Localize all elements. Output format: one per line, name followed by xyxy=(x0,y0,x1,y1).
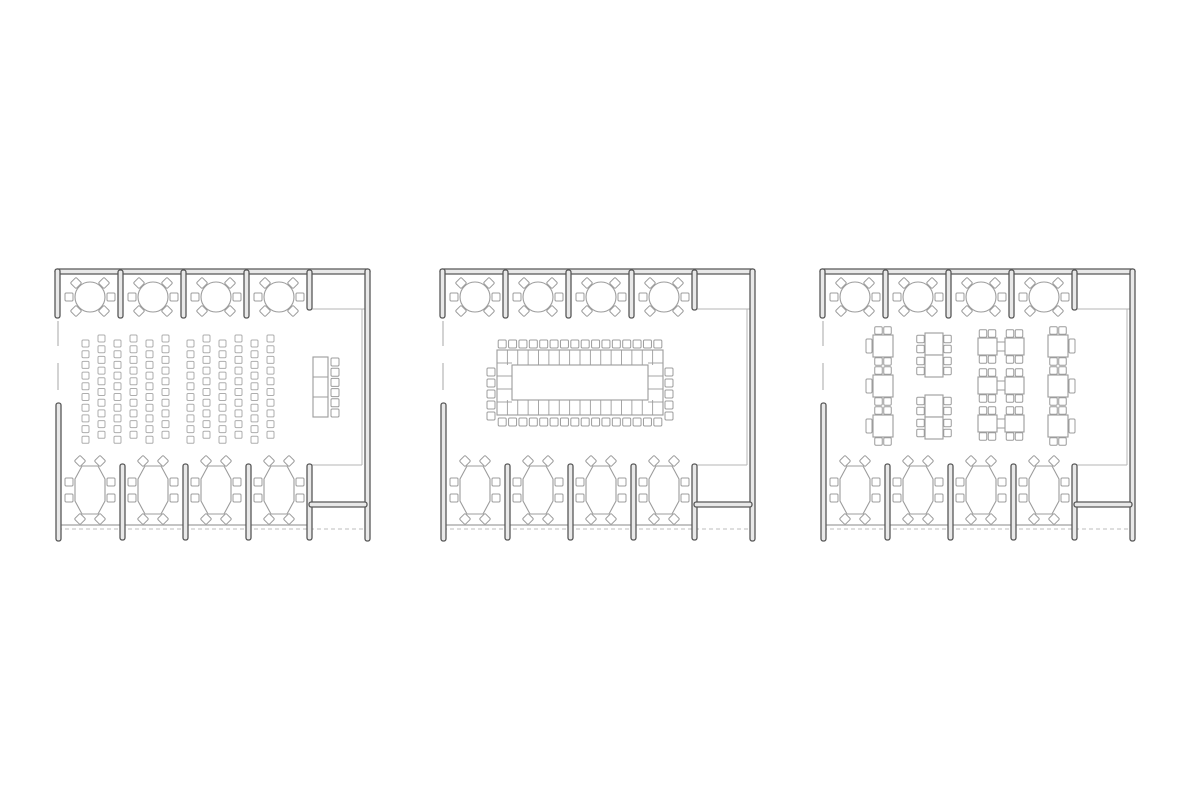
chair xyxy=(956,293,964,301)
chair xyxy=(585,455,596,466)
chair xyxy=(872,478,880,486)
oval-table-8-seats xyxy=(450,455,500,524)
chair xyxy=(203,346,210,353)
chair xyxy=(839,455,850,466)
chair xyxy=(200,513,211,524)
chair xyxy=(283,455,294,466)
chair xyxy=(522,455,533,466)
left-bottom-stub xyxy=(56,403,61,541)
chair xyxy=(529,418,537,426)
chair xyxy=(519,340,527,348)
chair xyxy=(875,367,883,375)
chair xyxy=(203,421,210,428)
chair xyxy=(235,356,242,363)
chair xyxy=(82,383,89,390)
chair xyxy=(979,407,987,415)
chair xyxy=(254,293,262,301)
chair xyxy=(875,438,883,446)
chair xyxy=(1050,407,1058,415)
chair xyxy=(665,412,673,420)
chair xyxy=(979,395,987,403)
chair xyxy=(157,513,168,524)
chair xyxy=(98,346,105,353)
right-wall xyxy=(1130,269,1135,541)
chair xyxy=(162,356,169,363)
chair xyxy=(944,335,952,343)
chair xyxy=(479,513,490,524)
chair xyxy=(618,478,626,486)
bottom-partition-1 xyxy=(120,464,125,540)
chair xyxy=(487,368,495,376)
chair xyxy=(944,345,952,353)
chair xyxy=(605,455,616,466)
bottom-partition-3 xyxy=(1011,464,1016,540)
chair xyxy=(643,340,651,348)
left-corner-return xyxy=(55,269,60,318)
chair xyxy=(612,340,620,348)
chair xyxy=(668,455,679,466)
chair xyxy=(114,404,121,411)
chair xyxy=(922,513,933,524)
chair xyxy=(114,340,121,347)
oval-table-8-seats xyxy=(65,455,115,524)
chair xyxy=(203,399,210,406)
chair xyxy=(875,327,883,335)
floor-plan-drawing-clusters xyxy=(813,268,1138,546)
chair xyxy=(235,399,242,406)
square-table xyxy=(1048,335,1068,357)
chair xyxy=(571,418,579,426)
chair xyxy=(988,356,996,364)
chair xyxy=(187,436,194,443)
chair xyxy=(998,293,1006,301)
chair xyxy=(219,361,226,368)
chair xyxy=(884,327,892,335)
chair xyxy=(665,390,673,398)
round-table-6-seats xyxy=(128,277,178,316)
chair xyxy=(665,401,673,409)
chair xyxy=(170,293,178,301)
round-table-6-seats xyxy=(450,277,500,316)
chair xyxy=(235,421,242,428)
chair xyxy=(1048,455,1059,466)
chair xyxy=(623,418,631,426)
chair xyxy=(988,330,996,338)
oval-table-8-seats xyxy=(956,455,1006,524)
chair xyxy=(235,346,242,353)
chair xyxy=(1050,367,1058,375)
chair xyxy=(162,421,169,428)
chair xyxy=(267,421,274,428)
oval-table-8-seats xyxy=(1019,455,1069,524)
rect-table xyxy=(925,395,943,417)
chair xyxy=(540,340,548,348)
chair xyxy=(1059,327,1067,335)
chair xyxy=(162,367,169,374)
chair xyxy=(1028,513,1039,524)
chair xyxy=(146,404,153,411)
chair xyxy=(146,394,153,401)
chair xyxy=(917,397,925,405)
chair xyxy=(203,367,210,374)
table-cluster-sqL xyxy=(866,407,893,446)
chair xyxy=(98,421,105,428)
chair xyxy=(98,431,105,438)
chair xyxy=(560,418,568,426)
rect-table xyxy=(925,333,943,355)
chair xyxy=(331,399,339,407)
chair xyxy=(200,455,211,466)
chair xyxy=(170,478,178,486)
oval-table-8-seats xyxy=(639,455,689,524)
chair xyxy=(233,494,241,502)
chair xyxy=(1015,407,1023,415)
chair xyxy=(542,455,553,466)
table-cluster-sqR xyxy=(1048,407,1075,446)
chair xyxy=(146,436,153,443)
chair xyxy=(979,369,987,377)
oval-table-8-seats xyxy=(191,455,241,524)
round-table-6-seats xyxy=(254,277,304,316)
chair xyxy=(956,494,964,502)
chair xyxy=(965,513,976,524)
chair xyxy=(203,335,210,342)
chair xyxy=(235,389,242,396)
chair xyxy=(1061,478,1069,486)
chair xyxy=(492,478,500,486)
chair xyxy=(529,340,537,348)
top-wall xyxy=(820,269,1135,274)
chair xyxy=(605,513,616,524)
chair xyxy=(82,415,89,422)
chair xyxy=(219,436,226,443)
round-table-6-seats xyxy=(1019,277,1069,316)
chair xyxy=(187,415,194,422)
chair xyxy=(219,394,226,401)
chair xyxy=(82,404,89,411)
chair xyxy=(618,494,626,502)
chair xyxy=(643,418,651,426)
chair xyxy=(555,494,563,502)
square-table xyxy=(978,377,997,394)
chair xyxy=(191,478,199,486)
chair xyxy=(509,340,517,348)
table-cluster-sqL xyxy=(866,367,893,406)
chair xyxy=(251,372,258,379)
chair xyxy=(107,293,115,301)
right-wall xyxy=(365,269,370,541)
chair xyxy=(576,293,584,301)
chair xyxy=(220,455,231,466)
chair xyxy=(872,494,880,502)
chair xyxy=(944,407,952,415)
chair xyxy=(602,418,610,426)
chair xyxy=(893,494,901,502)
chair xyxy=(576,494,584,502)
chair xyxy=(944,367,952,375)
chair xyxy=(866,379,872,393)
chair xyxy=(884,407,892,415)
chair xyxy=(1019,478,1027,486)
chair xyxy=(560,340,568,348)
chair xyxy=(979,433,987,441)
chair xyxy=(162,389,169,396)
chair xyxy=(137,513,148,524)
left-corner-return xyxy=(440,269,445,318)
chair xyxy=(917,335,925,343)
chair xyxy=(331,389,339,397)
chair xyxy=(146,415,153,422)
chair xyxy=(128,494,136,502)
oval-table-8-seats xyxy=(254,455,304,524)
chair xyxy=(498,340,506,348)
chair xyxy=(866,419,872,433)
chair xyxy=(1059,398,1067,406)
chair xyxy=(146,426,153,433)
chair xyxy=(1048,513,1059,524)
chair xyxy=(107,478,115,486)
chair xyxy=(648,455,659,466)
chair xyxy=(623,340,631,348)
chair xyxy=(1006,407,1014,415)
chair xyxy=(487,401,495,409)
chair xyxy=(654,418,662,426)
chair xyxy=(1006,330,1014,338)
chair xyxy=(170,494,178,502)
chair xyxy=(893,478,901,486)
stair-cross-wall xyxy=(694,502,752,507)
chair xyxy=(893,293,901,301)
chair xyxy=(187,383,194,390)
chair xyxy=(540,418,548,426)
chair xyxy=(917,367,925,375)
chair xyxy=(450,293,458,301)
stair-cross-wall xyxy=(1074,502,1132,507)
chair xyxy=(917,407,925,415)
oval-table-8-seats xyxy=(513,455,563,524)
chair xyxy=(1059,407,1067,415)
chair xyxy=(550,340,558,348)
chair xyxy=(1006,433,1014,441)
chair xyxy=(872,293,880,301)
chair xyxy=(633,340,641,348)
chair xyxy=(251,426,258,433)
table-cluster-hp xyxy=(978,369,1024,403)
chair xyxy=(592,340,600,348)
chair xyxy=(128,293,136,301)
chair xyxy=(513,478,521,486)
chair xyxy=(114,372,121,379)
chair xyxy=(944,419,952,427)
chair xyxy=(98,378,105,385)
chair xyxy=(162,431,169,438)
chair xyxy=(82,372,89,379)
chair xyxy=(94,513,105,524)
left-corner-return xyxy=(820,269,825,318)
chair xyxy=(979,330,987,338)
chair xyxy=(251,351,258,358)
chair xyxy=(130,346,137,353)
chair xyxy=(1059,438,1067,446)
chair xyxy=(233,478,241,486)
chair xyxy=(267,378,274,385)
square-table xyxy=(873,375,893,397)
chair xyxy=(1015,395,1023,403)
chair xyxy=(648,513,659,524)
chair xyxy=(922,455,933,466)
top-partition-3 xyxy=(629,270,634,318)
chair xyxy=(681,478,689,486)
chair xyxy=(513,494,521,502)
chair xyxy=(1069,339,1075,353)
chair xyxy=(146,372,153,379)
chair xyxy=(219,340,226,347)
chair xyxy=(555,478,563,486)
oval-table-8-seats xyxy=(576,455,626,524)
chair xyxy=(82,394,89,401)
chair xyxy=(917,345,925,353)
round-table-6-seats xyxy=(956,277,1006,316)
round-table-6-seats xyxy=(191,277,241,316)
chair xyxy=(251,340,258,347)
floor-plan-drawing-theater xyxy=(48,268,373,546)
chair xyxy=(1050,398,1058,406)
chair xyxy=(492,494,500,502)
chair xyxy=(875,407,883,415)
chair xyxy=(235,335,242,342)
square-table xyxy=(1005,338,1024,355)
chair xyxy=(146,383,153,390)
chair xyxy=(665,368,673,376)
chair xyxy=(219,415,226,422)
chair xyxy=(519,418,527,426)
chair xyxy=(581,418,589,426)
chair xyxy=(1015,356,1023,364)
chair xyxy=(1015,433,1023,441)
chair xyxy=(450,494,458,502)
chair xyxy=(187,372,194,379)
chair xyxy=(263,455,274,466)
chair xyxy=(187,351,194,358)
floor-plan-drawing-boardroom xyxy=(433,268,758,546)
square-table xyxy=(1048,415,1068,437)
chair xyxy=(902,455,913,466)
oval-table-8-seats xyxy=(893,455,943,524)
chair xyxy=(555,293,563,301)
left-bottom-stub xyxy=(821,403,826,541)
bottom-partition-1 xyxy=(885,464,890,540)
chair xyxy=(283,513,294,524)
chair xyxy=(956,478,964,486)
theater-row-seating xyxy=(82,335,274,443)
top-wall xyxy=(440,269,755,274)
square-table xyxy=(873,415,893,437)
table-cluster-hp xyxy=(978,407,1024,441)
table-cluster-sqL xyxy=(866,327,893,366)
chair xyxy=(162,378,169,385)
chair xyxy=(1015,369,1023,377)
top-partition-1 xyxy=(118,270,123,318)
chair xyxy=(203,389,210,396)
chair xyxy=(866,339,872,353)
chair xyxy=(498,418,506,426)
bottom-partition-3 xyxy=(631,464,636,540)
chair xyxy=(267,335,274,342)
chair xyxy=(162,399,169,406)
chair xyxy=(94,455,105,466)
chair xyxy=(98,399,105,406)
top-partition-1 xyxy=(503,270,508,318)
chair xyxy=(235,431,242,438)
chair xyxy=(98,410,105,417)
chair xyxy=(235,410,242,417)
chair xyxy=(219,383,226,390)
chair xyxy=(944,397,952,405)
chair xyxy=(571,340,579,348)
chair xyxy=(633,418,641,426)
chair xyxy=(935,293,943,301)
chair xyxy=(191,494,199,502)
chair xyxy=(585,513,596,524)
chair xyxy=(65,478,73,486)
top-partition-2 xyxy=(566,270,571,318)
chair xyxy=(114,426,121,433)
chair xyxy=(859,513,870,524)
chair xyxy=(187,426,194,433)
chair xyxy=(219,372,226,379)
chair xyxy=(187,404,194,411)
chair xyxy=(162,346,169,353)
chair xyxy=(146,361,153,368)
chair xyxy=(509,418,517,426)
chair xyxy=(492,293,500,301)
chair xyxy=(665,379,673,387)
chair xyxy=(254,478,262,486)
chair xyxy=(1069,379,1075,393)
chair xyxy=(1050,358,1058,366)
bottom-partition-3 xyxy=(246,464,251,540)
chair xyxy=(618,293,626,301)
chair xyxy=(988,407,996,415)
chair xyxy=(98,335,105,342)
chair xyxy=(137,455,148,466)
chair xyxy=(187,361,194,368)
chair xyxy=(450,478,458,486)
chair xyxy=(576,478,584,486)
chair xyxy=(130,399,137,406)
chair xyxy=(98,367,105,374)
chair xyxy=(130,356,137,363)
chair xyxy=(65,293,73,301)
floor-plans-canvas xyxy=(0,0,1200,800)
chair xyxy=(146,340,153,347)
chair xyxy=(988,395,996,403)
chair xyxy=(130,431,137,438)
chair xyxy=(830,478,838,486)
chair xyxy=(1015,330,1023,338)
right-wall xyxy=(750,269,755,541)
chair xyxy=(902,513,913,524)
chair xyxy=(296,293,304,301)
board-table-inner xyxy=(512,365,648,400)
square-table xyxy=(873,335,893,357)
chair xyxy=(612,418,620,426)
chair xyxy=(114,383,121,390)
chair xyxy=(267,410,274,417)
chair xyxy=(82,340,89,347)
chair xyxy=(988,369,996,377)
chair xyxy=(581,340,589,348)
